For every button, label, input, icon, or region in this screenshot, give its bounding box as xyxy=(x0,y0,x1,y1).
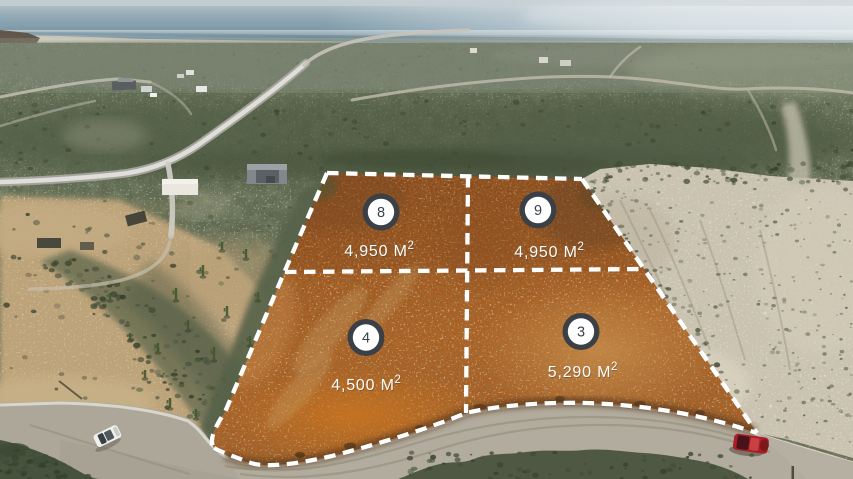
svg-text:4,950 M: 4,950 M xyxy=(344,243,407,260)
svg-text:3: 3 xyxy=(577,325,585,341)
svg-text:4,950 M: 4,950 M xyxy=(514,244,577,261)
svg-text:4: 4 xyxy=(362,331,370,347)
svg-text:9: 9 xyxy=(534,203,542,219)
svg-text:4,500 M: 4,500 M xyxy=(331,377,394,394)
svg-text:2: 2 xyxy=(611,361,618,373)
svg-text:5,290 M: 5,290 M xyxy=(548,364,611,381)
svg-text:8: 8 xyxy=(377,205,385,221)
svg-text:2: 2 xyxy=(578,241,585,253)
svg-text:2: 2 xyxy=(395,374,402,386)
svg-text:2: 2 xyxy=(408,240,415,252)
